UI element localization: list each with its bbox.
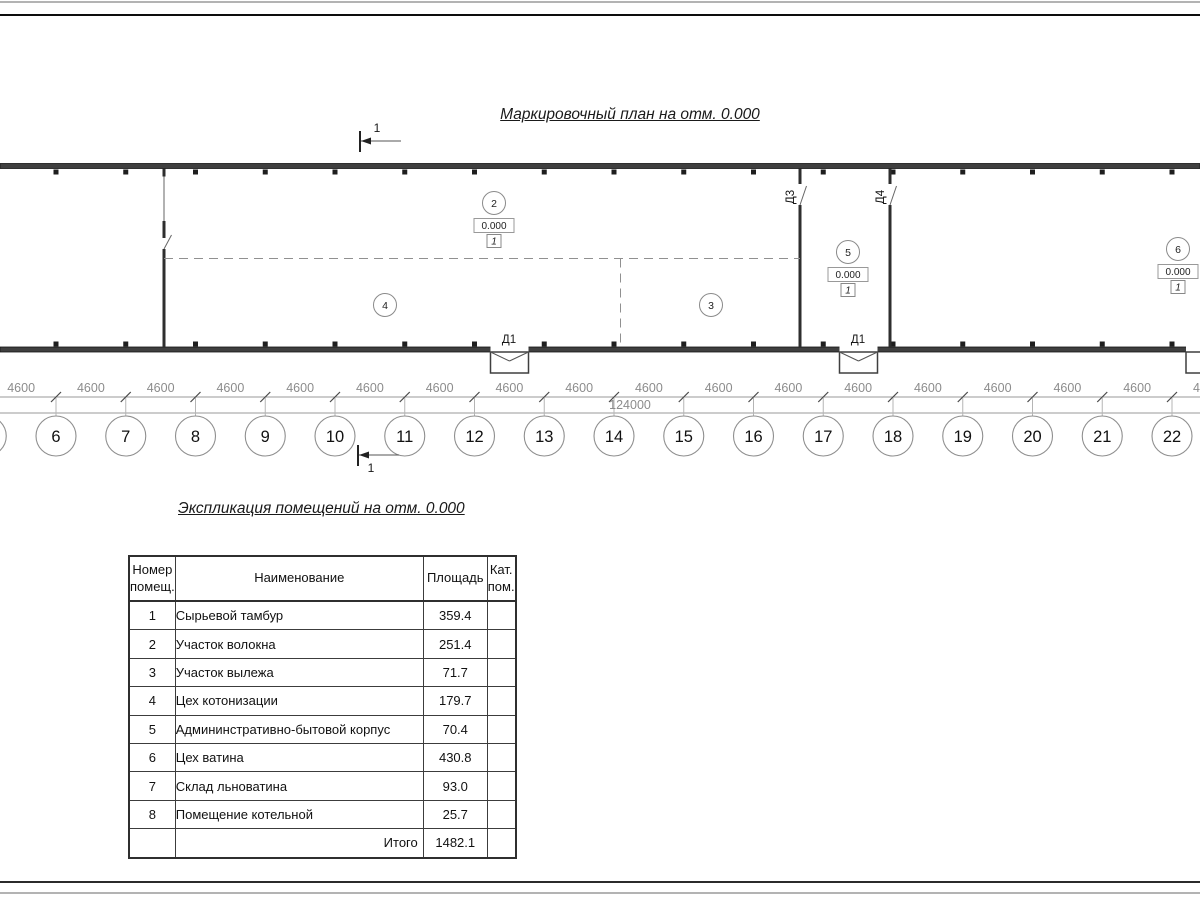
dim-segment-label: 4600: [984, 381, 1012, 395]
cell-room-name: Участок волокна: [175, 630, 423, 658]
column-mark: [402, 342, 407, 347]
table-row: 4Цех котонизации179.7: [129, 687, 516, 715]
column-mark: [472, 342, 477, 347]
cell-room-category: [487, 743, 515, 771]
column-mark: [54, 342, 59, 347]
cell-room-area: 71.7: [423, 658, 487, 686]
column-mark: [681, 170, 686, 175]
column-mark: [123, 342, 128, 347]
dim-segment-label: 4600: [635, 381, 663, 395]
explication-header-row: Номер помещ. Наименование Площадь Кат. п…: [129, 556, 516, 601]
elevation-label: 0.000: [481, 221, 506, 232]
column-mark: [1030, 342, 1035, 347]
axis-label: 22: [1163, 428, 1181, 446]
column-mark: [960, 342, 965, 347]
axis-label: 21: [1093, 428, 1111, 446]
door-swing: [890, 186, 897, 205]
explication-body: 1Сырьевой тамбур359.42Участок волокна251…: [129, 601, 516, 858]
cell-room-name: Склад льноватина: [175, 772, 423, 800]
cell-total-label: Итого: [175, 829, 423, 858]
axis-label: 16: [744, 428, 762, 446]
column-mark: [54, 170, 59, 175]
category-label: 1: [491, 237, 497, 248]
axis-label: 17: [814, 428, 832, 446]
column-mark: [821, 170, 826, 175]
column-mark: [751, 170, 756, 175]
dim-segment-label: 4600: [147, 381, 175, 395]
axis-label: 8: [191, 428, 200, 446]
cell-room-number: 3: [129, 658, 175, 686]
room-number-label: 5: [845, 247, 851, 259]
cell-room-area: 359.4: [423, 601, 487, 630]
explication-table: Номер помещ. Наименование Площадь Кат. п…: [128, 555, 517, 859]
dim-segment-label: 4600: [1193, 381, 1200, 395]
cell-room-area: 25.7: [423, 800, 487, 828]
dim-segment-label: 4600: [77, 381, 105, 395]
section-mark-label: 1: [374, 121, 381, 135]
header-room-number: Номер помещ.: [129, 556, 175, 601]
table-row: 5Админинстративно-бытовой корпус70.4: [129, 715, 516, 743]
axis-label: 13: [535, 428, 553, 446]
column-mark: [123, 170, 128, 175]
dim-total-label: 124000: [609, 398, 651, 412]
elevation-label: 0.000: [1165, 267, 1190, 278]
floor-plan-canvas: Д1Д1Д3Д446004600460046004600460046004600…: [0, 0, 1200, 480]
dim-segment-label: 4600: [1123, 381, 1151, 395]
dim-segment-label: 4600: [286, 381, 314, 395]
cell-total-category: [487, 829, 515, 858]
cell-room-area: 70.4: [423, 715, 487, 743]
dim-segment-label: 4600: [844, 381, 872, 395]
column-mark: [542, 170, 547, 175]
door-label: Д1: [851, 334, 865, 346]
column-mark: [960, 170, 965, 175]
axis-label: 20: [1023, 428, 1041, 446]
column-mark: [1170, 170, 1175, 175]
cell-room-name: Помещение котельной: [175, 800, 423, 828]
dim-segment-label: 4600: [1053, 381, 1081, 395]
room-number-label: 4: [382, 300, 388, 312]
axis-label: 10: [326, 428, 344, 446]
cell-total-blank: [129, 829, 175, 858]
dim-segment-label: 4600: [426, 381, 454, 395]
column-mark: [1170, 342, 1175, 347]
cell-room-area: 251.4: [423, 630, 487, 658]
column-mark: [821, 342, 826, 347]
dim-segment-label: 4600: [914, 381, 942, 395]
dim-segment-label: 4600: [356, 381, 384, 395]
column-mark: [1100, 170, 1105, 175]
axis-label: 14: [605, 428, 623, 446]
column-mark: [193, 170, 198, 175]
elevation-label: 0.000: [835, 270, 860, 281]
column-mark: [542, 342, 547, 347]
column-mark: [333, 170, 338, 175]
header-area: Площадь: [423, 556, 487, 601]
room-number-label: 2: [491, 198, 497, 210]
dim-segment-label: 4600: [774, 381, 802, 395]
sheet-frame-bottom-outer: [0, 892, 1200, 894]
column-mark: [263, 170, 268, 175]
cell-room-number: 1: [129, 601, 175, 630]
cell-room-category: [487, 687, 515, 715]
door-label: Д3: [785, 190, 797, 204]
cell-room-number: 5: [129, 715, 175, 743]
cell-room-category: [487, 658, 515, 686]
cell-room-number: 4: [129, 687, 175, 715]
column-mark: [333, 342, 338, 347]
axis-label: 9: [261, 428, 270, 446]
cell-room-name: Админинстративно-бытовой корпус: [175, 715, 423, 743]
cell-room-number: 8: [129, 800, 175, 828]
column-mark: [402, 170, 407, 175]
axis-label: 15: [675, 428, 693, 446]
cell-total-value: 1482.1: [423, 829, 487, 858]
column-mark: [612, 342, 617, 347]
cell-room-name: Участок вылежа: [175, 658, 423, 686]
table-total-row: Итого1482.1: [129, 829, 516, 858]
table-row: 8Помещение котельной25.7: [129, 800, 516, 828]
column-mark: [263, 342, 268, 347]
explication-title: Экспликация помещений на отм. 0.000: [178, 500, 465, 518]
dim-segment-label: 4600: [565, 381, 593, 395]
wall-bottom: [0, 347, 1200, 352]
cell-room-number: 6: [129, 743, 175, 771]
axis-label: 12: [465, 428, 483, 446]
column-mark: [1030, 170, 1035, 175]
table-row: 3Участок вылежа71.7: [129, 658, 516, 686]
column-mark: [612, 170, 617, 175]
table-row: 1Сырьевой тамбур359.4: [129, 601, 516, 630]
section-arrow-icon: [359, 452, 369, 459]
column-mark: [193, 342, 198, 347]
section-arrow-icon: [361, 138, 371, 145]
dim-segment-label: 4600: [705, 381, 733, 395]
header-name: Наименование: [175, 556, 423, 601]
cell-room-number: 2: [129, 630, 175, 658]
room-number-label: 6: [1175, 244, 1181, 256]
cell-room-category: [487, 601, 515, 630]
door-label: Д4: [875, 189, 887, 204]
cell-room-name: Цех ватина: [175, 743, 423, 771]
header-category: Кат. пом.: [487, 556, 515, 601]
table-row: 2Участок волокна251.4: [129, 630, 516, 658]
column-mark: [681, 342, 686, 347]
dim-segment-label: 4600: [7, 381, 35, 395]
cell-room-area: 93.0: [423, 772, 487, 800]
cell-room-category: [487, 715, 515, 743]
door-label: Д1: [502, 334, 516, 346]
cell-room-area: 179.7: [423, 687, 487, 715]
column-mark: [1100, 342, 1105, 347]
room-number-label: 3: [708, 300, 714, 312]
dim-segment-label: 4600: [216, 381, 244, 395]
table-row: 7Склад льноватина93.0: [129, 772, 516, 800]
column-mark: [751, 342, 756, 347]
cell-room-name: Сырьевой тамбур: [175, 601, 423, 630]
axis-label: 18: [884, 428, 902, 446]
axis-label: 11: [396, 428, 413, 446]
cell-room-name: Цех котонизации: [175, 687, 423, 715]
table-row: 6Цех ватина430.8: [129, 743, 516, 771]
axis-label: 19: [954, 428, 972, 446]
cell-room-category: [487, 630, 515, 658]
axis-label: 6: [51, 428, 60, 446]
cell-room-category: [487, 800, 515, 828]
category-label: 1: [845, 286, 851, 297]
door-swing: [800, 186, 807, 205]
drawing-sheet: Маркировочный план на отм. 0.000 Д1Д1Д3Д…: [0, 0, 1200, 900]
door-vestibule: [1186, 352, 1200, 373]
cell-room-number: 7: [129, 772, 175, 800]
cell-room-area: 430.8: [423, 743, 487, 771]
axis-circle: [0, 416, 6, 456]
wall-top: [0, 164, 1200, 169]
column-mark: [472, 170, 477, 175]
sheet-frame-bottom-inner: [0, 881, 1200, 883]
cell-room-category: [487, 772, 515, 800]
dim-segment-label: 4600: [495, 381, 523, 395]
axis-label: 7: [121, 428, 130, 446]
category-label: 1: [1175, 283, 1181, 294]
section-mark-label: 1: [368, 461, 375, 475]
